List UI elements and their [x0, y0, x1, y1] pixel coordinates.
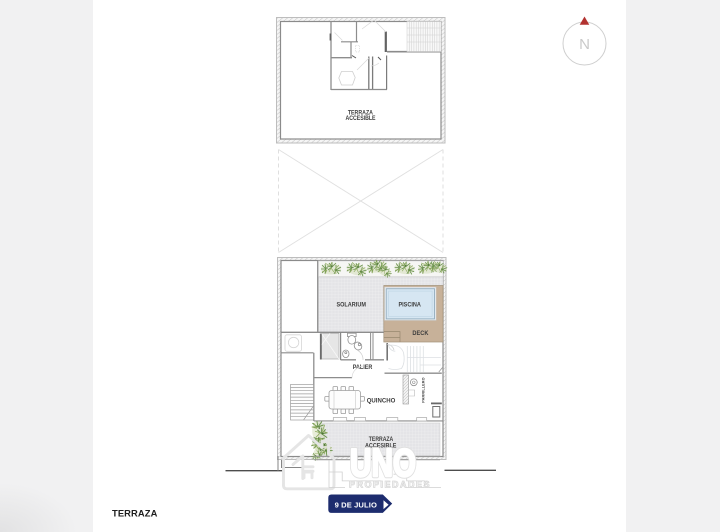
- svg-text:SOLARIUM: SOLARIUM: [336, 302, 366, 309]
- svg-text:ACCESIBLE: ACCESIBLE: [345, 115, 375, 122]
- svg-text:DECK: DECK: [412, 330, 428, 337]
- svg-text:9 DE JULIO: 9 DE JULIO: [335, 500, 377, 509]
- svg-text:N: N: [579, 36, 590, 53]
- svg-text:PROPIEDADES: PROPIEDADES: [349, 480, 431, 490]
- svg-text:QUINCHO: QUINCHO: [367, 398, 396, 405]
- svg-text:PISCINA: PISCINA: [398, 301, 421, 308]
- svg-text:TERRAZA: TERRAZA: [112, 508, 158, 519]
- svg-text:PARRILLERO: PARRILLERO: [422, 377, 426, 402]
- svg-text:UNO: UNO: [350, 442, 416, 485]
